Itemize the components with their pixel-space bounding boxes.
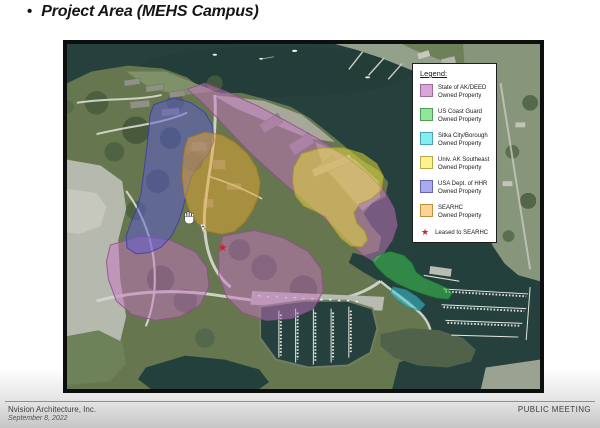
title-bullet: • xyxy=(27,3,32,20)
slide-title: • Project Area (MEHS Campus) xyxy=(27,3,259,21)
legend-item-searhc: SEARHC Owned Property xyxy=(420,204,493,220)
legend-item-deed: State of AK/DEED Owned Property xyxy=(420,84,493,100)
legend-label-line: Sitka City/Borough xyxy=(438,133,488,141)
university-swatch xyxy=(420,156,433,169)
legend-label-line: Owned Property xyxy=(438,165,489,173)
map-legend: Legend: State of AK/DEED Owned Property … xyxy=(412,63,497,243)
legend-item-leased-star: ★ Leased to SEARHC xyxy=(421,228,493,237)
legend-item-city-borough: Sitka City/Borough Owned Property xyxy=(420,132,493,148)
city-borough-swatch xyxy=(420,132,433,145)
hand-cursor-icon[interactable] xyxy=(185,212,194,224)
legend-item-hhr: USA Dept. of HHR Owned Property xyxy=(420,180,493,196)
footer-date: September 8, 2022 xyxy=(8,415,68,422)
legend-label-line: Owned Property xyxy=(438,141,488,149)
legend-label-line: Owned Property xyxy=(438,189,487,197)
legend-label-line: Owned Property xyxy=(438,93,486,101)
legend-label-line: US Coast Guard xyxy=(438,109,482,117)
coast-guard-swatch xyxy=(420,108,433,121)
legend-label-line: Leased to SEARHC xyxy=(435,230,488,236)
searhc-swatch xyxy=(420,204,433,217)
footer-meeting-label: PUBLIC MEETING xyxy=(518,405,591,414)
legend-label-line: State of AK/DEED xyxy=(438,85,486,93)
footer-company: Nvision Architecture, Inc. xyxy=(8,405,96,414)
page-title: Project Area (MEHS Campus) xyxy=(41,3,258,21)
slide-footer: Nvision Architecture, Inc. September 8, … xyxy=(5,401,595,428)
legend-label-line: USA Dept. of HHR xyxy=(438,181,487,189)
leased-star-marker: ★ xyxy=(218,242,228,254)
legend-label-line: SEARHC xyxy=(438,205,481,213)
hhr-swatch xyxy=(420,180,433,193)
legend-item-coast-guard: US Coast Guard Owned Property xyxy=(420,108,493,124)
legend-heading: Legend: xyxy=(420,69,493,78)
legend-label-line: Owned Property xyxy=(438,117,482,125)
legend-item-university: Univ. AK Southeast Owned Property xyxy=(420,156,493,172)
campus-map[interactable]: ★ Legend: State of AK/DEED Owned Propert… xyxy=(63,40,544,393)
legend-label-line: Univ. AK Southeast xyxy=(438,157,489,165)
deed-swatch xyxy=(420,84,433,97)
star-icon: ★ xyxy=(421,228,429,237)
legend-label-line: Owned Property xyxy=(438,213,481,221)
